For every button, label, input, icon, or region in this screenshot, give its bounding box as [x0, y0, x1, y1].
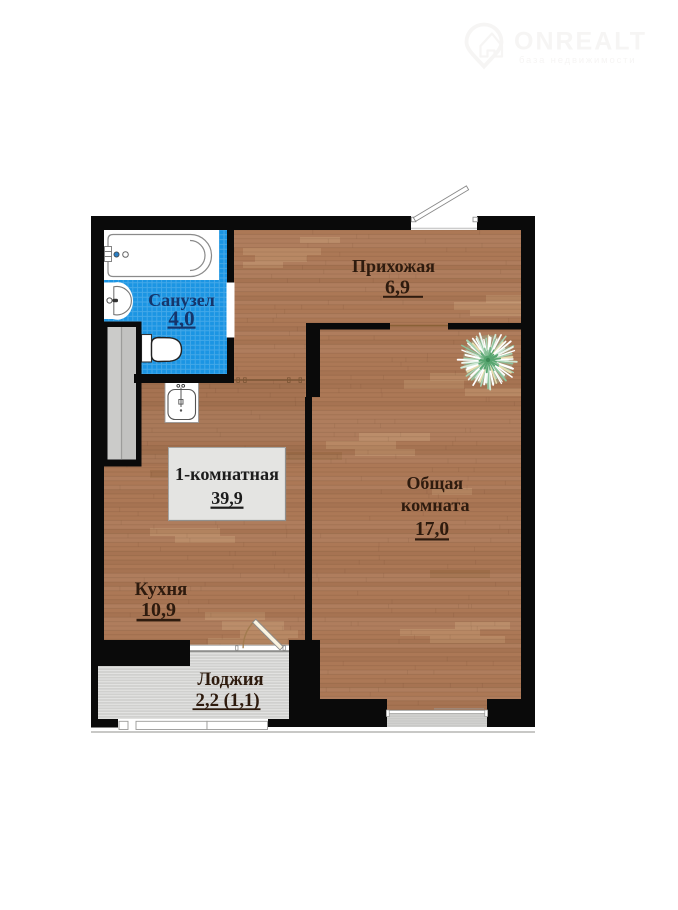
svg-text:Кухня: Кухня: [135, 579, 188, 600]
svg-text:комната: комната: [401, 495, 470, 515]
svg-text:Прихожая: Прихожая: [352, 256, 435, 276]
svg-text:6,9: 6,9: [385, 277, 410, 299]
svg-text:10,9: 10,9: [141, 599, 176, 621]
svg-text:база недвижимости: база недвижимости: [519, 55, 636, 66]
svg-text:39,9: 39,9: [211, 488, 243, 508]
svg-text:1-комнатная: 1-комнатная: [175, 464, 279, 484]
svg-text:Лоджия: Лоджия: [197, 669, 263, 690]
svg-text:2,2 (1,1): 2,2 (1,1): [196, 690, 260, 711]
svg-text:Общая: Общая: [407, 473, 464, 493]
svg-text:ONREALT: ONREALT: [514, 28, 647, 56]
svg-text:17,0: 17,0: [415, 519, 449, 540]
